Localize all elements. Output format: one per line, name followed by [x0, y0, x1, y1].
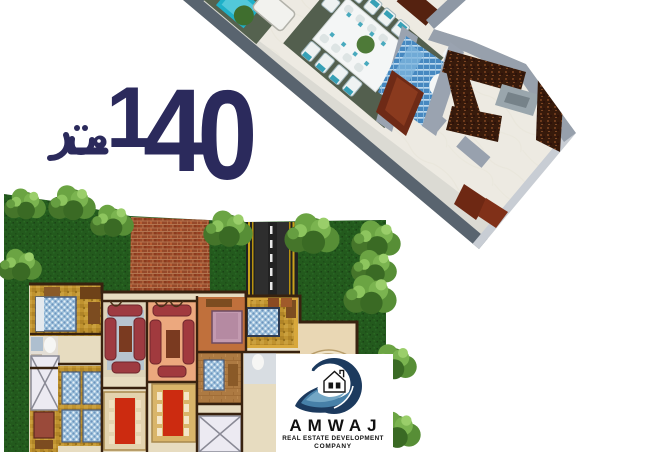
- svg-text:4: 4: [143, 65, 205, 197]
- svg-text:AMWAJ: AMWAJ: [289, 416, 382, 435]
- svg-text:COMPANY: COMPANY: [314, 443, 352, 450]
- svg-text:REAL ESTATE DEVELOPMENT: REAL ESTATE DEVELOPMENT: [282, 435, 384, 442]
- svg-text:0: 0: [197, 64, 257, 206]
